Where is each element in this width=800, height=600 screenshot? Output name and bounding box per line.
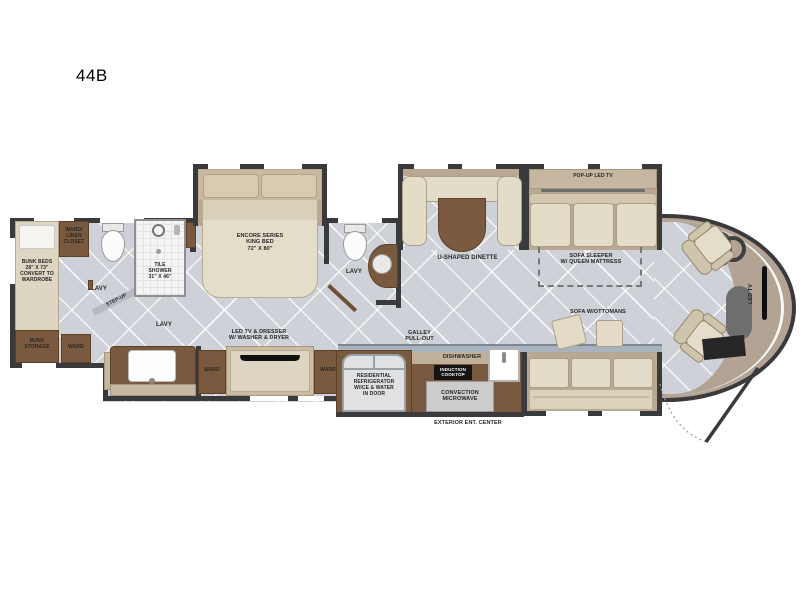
sofa-sleeper-cushion [616, 203, 657, 247]
sofa-seat-line [533, 396, 649, 398]
door-jamb [88, 280, 93, 290]
lavy-master-label: LAVY [148, 322, 180, 329]
bed-pillow [203, 174, 259, 198]
shower-drain-icon [156, 249, 161, 254]
sofa-cushion [571, 358, 611, 388]
king-bed-label: ENCORE SERIES KING BED 72" X 80" [213, 233, 307, 252]
tv-dresser-label: LED TV & DRESSER W/ WASHER & DRYER [200, 329, 318, 342]
ward-rear-label: WARD [61, 345, 91, 351]
shower-control-icon [152, 224, 165, 237]
window-gap [264, 164, 302, 169]
window-gap [462, 164, 496, 169]
shower-head-icon [174, 225, 180, 235]
u-dinette-label: U-SHAPED DINETTE [420, 255, 515, 262]
bed-sheet-fold [203, 200, 317, 220]
floorplan-page: 44B BUNK BEDS 28" X 73" CONVERT TO WARDR… [0, 0, 800, 600]
kitchen-faucet [502, 352, 506, 363]
midbath-sink [372, 254, 392, 274]
dinette-bench-right [497, 176, 522, 246]
bunk-pillow [19, 225, 55, 249]
floorplan-title: 44B [76, 66, 108, 86]
dinette-bench-left [402, 176, 427, 246]
refrigerator-label: RESIDENTIAL REFRIGERATOR W/ICE & WATER I… [341, 374, 407, 398]
window-gap [546, 411, 588, 416]
window-gap [414, 164, 448, 169]
lavy-mid-label: LAVY [338, 269, 370, 276]
sofa-sleeper-cushion [530, 203, 571, 247]
sofa-sleeper-label: SOFA SLEEPER W/ QUEEN MATTRESS [545, 253, 637, 266]
front-led-tv-label: LED TV [748, 272, 754, 316]
sofa-ottomans-label: SOFA W/OTTOMANS [556, 309, 640, 315]
bunk-storage-label: BUNK STORAGE [15, 339, 59, 351]
sofa-cushion [529, 358, 569, 388]
window-gap [338, 218, 382, 223]
front-led-tv [762, 266, 767, 320]
dinette-slide-trim [403, 169, 519, 176]
bunk-beds-label: BUNK BEDS 28" X 73" CONVERT TO WARDROBE [12, 260, 62, 284]
ward-left-label: WARD [198, 368, 226, 374]
wall-bottom-kitchen [336, 412, 524, 417]
led-tv-bedroom [240, 355, 300, 361]
sofa-seat-front [529, 389, 653, 410]
fridge-shelf-line [344, 368, 404, 370]
window-gap [22, 363, 56, 368]
bed-pillow [261, 174, 317, 198]
entry-door-swing [640, 358, 800, 458]
window-gap [250, 396, 288, 401]
tile-shower-label: TILE SHOWER 31" X 46" [135, 263, 185, 281]
exterior-ent-center-label: EXTERIOR ENT. CENTER [420, 420, 516, 426]
dinette-table [438, 198, 486, 252]
wall-midbath-left [324, 222, 329, 264]
rear-notch-mask [10, 368, 103, 402]
window-gap [602, 411, 640, 416]
galley-pullout-label: GALLEY PULL-OUT [392, 330, 447, 343]
window-gap [298, 396, 324, 401]
sofa-sleeper-cushion [573, 203, 614, 247]
popup-led-tv-label: POP-UP LED TV [529, 174, 657, 180]
ottoman [596, 320, 623, 347]
induction-cooktop-label: INDUCTION COOKTOP [434, 367, 472, 378]
vanity-base [110, 384, 196, 396]
ward-linen-label: WARD/ LINEN CLOSET [59, 228, 89, 246]
popup-tv-screen [541, 189, 645, 192]
microwave-label: CONVECTION MICROWAVE [426, 390, 494, 403]
window-gap [208, 164, 240, 169]
vanity-faucet [149, 378, 155, 384]
entry-step-well [702, 335, 746, 360]
wall-midbath-bottom [376, 300, 401, 305]
